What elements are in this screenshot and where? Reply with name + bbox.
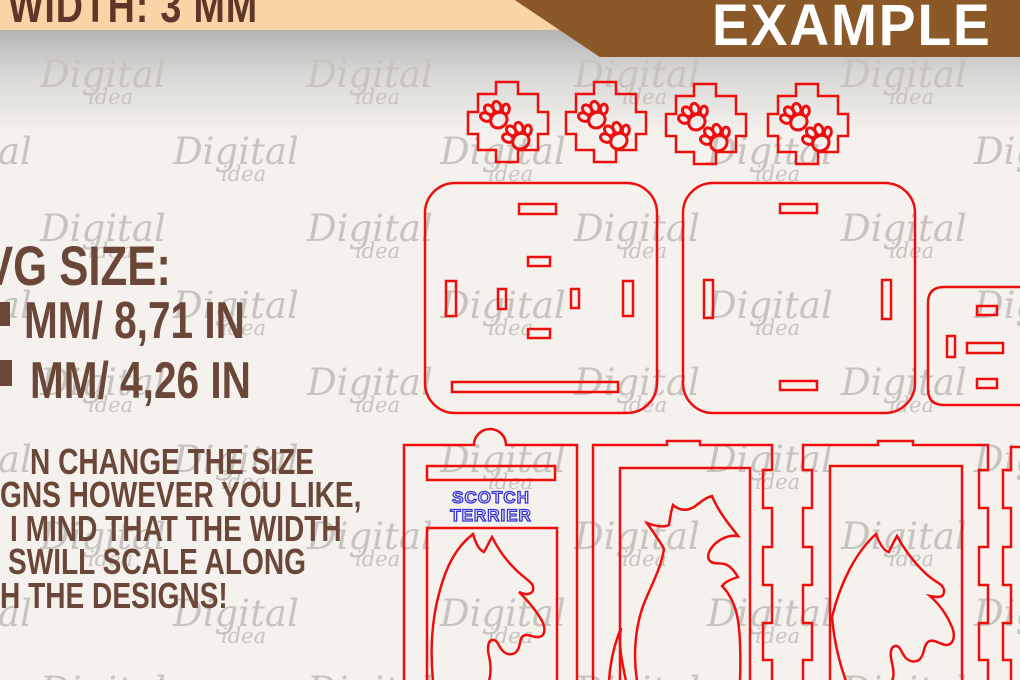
size-line-mm-in-2: MM/ 4,26 IN (30, 351, 251, 411)
paw-print-icon (775, 95, 840, 158)
paw-print-icon (475, 93, 540, 156)
dog-silhouette-body (635, 496, 740, 680)
base-panel-2 (683, 183, 915, 413)
size-heading: VG SIZE: (0, 233, 171, 298)
laser-cut-listing-preview: DigitalideaDigitalideaDigitalideaDigital… (0, 0, 1020, 680)
engrave-label-line2: TERRIER (450, 506, 532, 525)
base-panel-3-partial (928, 287, 1020, 405)
cut-off-glyph-fragment (0, 302, 10, 326)
dog-silhouette-head-1 (432, 534, 545, 680)
side-panel-a (404, 429, 577, 680)
side-panel-b (593, 441, 772, 680)
size-line-mm-in-1: MM/ 8,71 IN (24, 291, 245, 351)
paw-print-icon (673, 95, 738, 158)
dog-silhouette-head-2 (832, 534, 954, 680)
cut-off-glyph-fragment (0, 360, 12, 386)
side-panel-c (803, 441, 988, 680)
example-label: EXAMPLE (712, 0, 992, 59)
paw-piece-3 (666, 84, 746, 164)
note-line-5: H THE DESIGNS! (0, 575, 228, 617)
paw-piece-1 (468, 82, 548, 162)
base-panel-1 (425, 183, 657, 413)
info-text-block: VG SIZE: MM/ 8,71 IN MM/ 4,26 IN N CHANG… (0, 0, 420, 680)
side-panel-d-partial (1003, 447, 1020, 680)
engrave-label-line1: SCOTCH (452, 488, 530, 507)
paw-print-icon (573, 93, 638, 156)
paw-piece-2 (566, 82, 646, 162)
paw-piece-4 (768, 84, 848, 164)
